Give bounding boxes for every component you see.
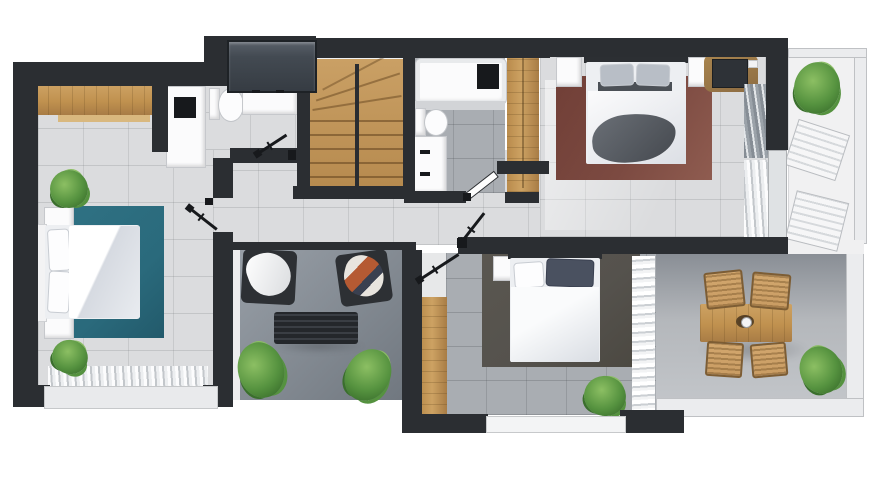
door-jamb (457, 238, 467, 248)
bed-bottom-duvet (511, 287, 599, 362)
faucet (252, 90, 260, 93)
stair-handrail (355, 64, 359, 190)
wall-bathroom2-bottom-a (404, 191, 466, 203)
wall-bedroom-bottom-south-a (402, 414, 488, 433)
remote (748, 60, 758, 68)
wall-top-left (13, 62, 230, 86)
terrace-upper-parapet-top (788, 48, 867, 58)
cup (741, 317, 752, 328)
bed-right-pillow (600, 63, 635, 86)
bed-bottom-pillow-dark (546, 258, 595, 288)
bed-right-pillow (636, 63, 671, 86)
wall-bedroom-left-right (213, 232, 233, 407)
shower-cabin-base (174, 97, 196, 118)
door-jamb (205, 198, 213, 205)
washbasin-vanity (414, 136, 447, 194)
faucet (420, 150, 430, 154)
terrace-lower-parapet-bottom (656, 398, 864, 417)
wall-bathroom2-bottom-b (497, 161, 549, 174)
wardrobe (420, 297, 447, 416)
dining-chair (750, 341, 789, 378)
toilet-bowl (218, 88, 244, 122)
faucet (420, 172, 430, 176)
wall-left-outer (13, 62, 38, 407)
wall-hall-stub-upper (213, 158, 233, 198)
faucet (276, 90, 284, 93)
dresser (36, 85, 154, 115)
wall-bedroom-bottom-south-b (620, 410, 684, 433)
dining-chair (703, 269, 746, 310)
slatted-bench (274, 312, 358, 344)
toilet-bowl (424, 109, 448, 136)
window-sill-bedroom-left (44, 386, 218, 409)
wall-under-wardrobe (505, 192, 539, 203)
wall-stairs-bottom (293, 186, 415, 199)
wall-bathroom1-left (152, 84, 168, 152)
dining-chair (705, 341, 744, 378)
bed-left-pillow (47, 228, 71, 271)
wall-bedroom-right-top (545, 38, 788, 57)
shower-glass (227, 40, 317, 93)
wall-mid-long (458, 237, 788, 254)
terrace-upper-parapet-right (854, 50, 867, 244)
door-hinge (463, 193, 471, 201)
curtain-bedroom-right-lower (744, 160, 770, 238)
window-bedroom-right (768, 150, 787, 240)
wall-bathroom2-left (403, 42, 415, 195)
terrace-lower-parapet-right (846, 250, 864, 417)
dining-chair (750, 271, 792, 310)
wall-bathroom2-top (404, 38, 550, 58)
dresser-shadow (58, 115, 150, 122)
floor-plan-scene: Top-down 3D render of an apartment floor… (0, 0, 890, 500)
curtain-bedroom-bottom (632, 256, 655, 413)
nightstand (556, 57, 582, 87)
wall-bedroom-right-right (766, 40, 788, 150)
bed-left-pillow (47, 270, 71, 313)
plant (50, 170, 88, 208)
bed-left-duvet (69, 226, 140, 318)
wall-lounge-top (228, 242, 416, 250)
bathtub-ledge (415, 101, 505, 110)
bathtub-mat (477, 64, 499, 89)
window-bedroom-bottom (486, 416, 626, 433)
bed-bottom-pillow (513, 261, 545, 289)
staircase (310, 58, 403, 190)
tv (712, 59, 748, 88)
door-jamb (288, 150, 296, 160)
